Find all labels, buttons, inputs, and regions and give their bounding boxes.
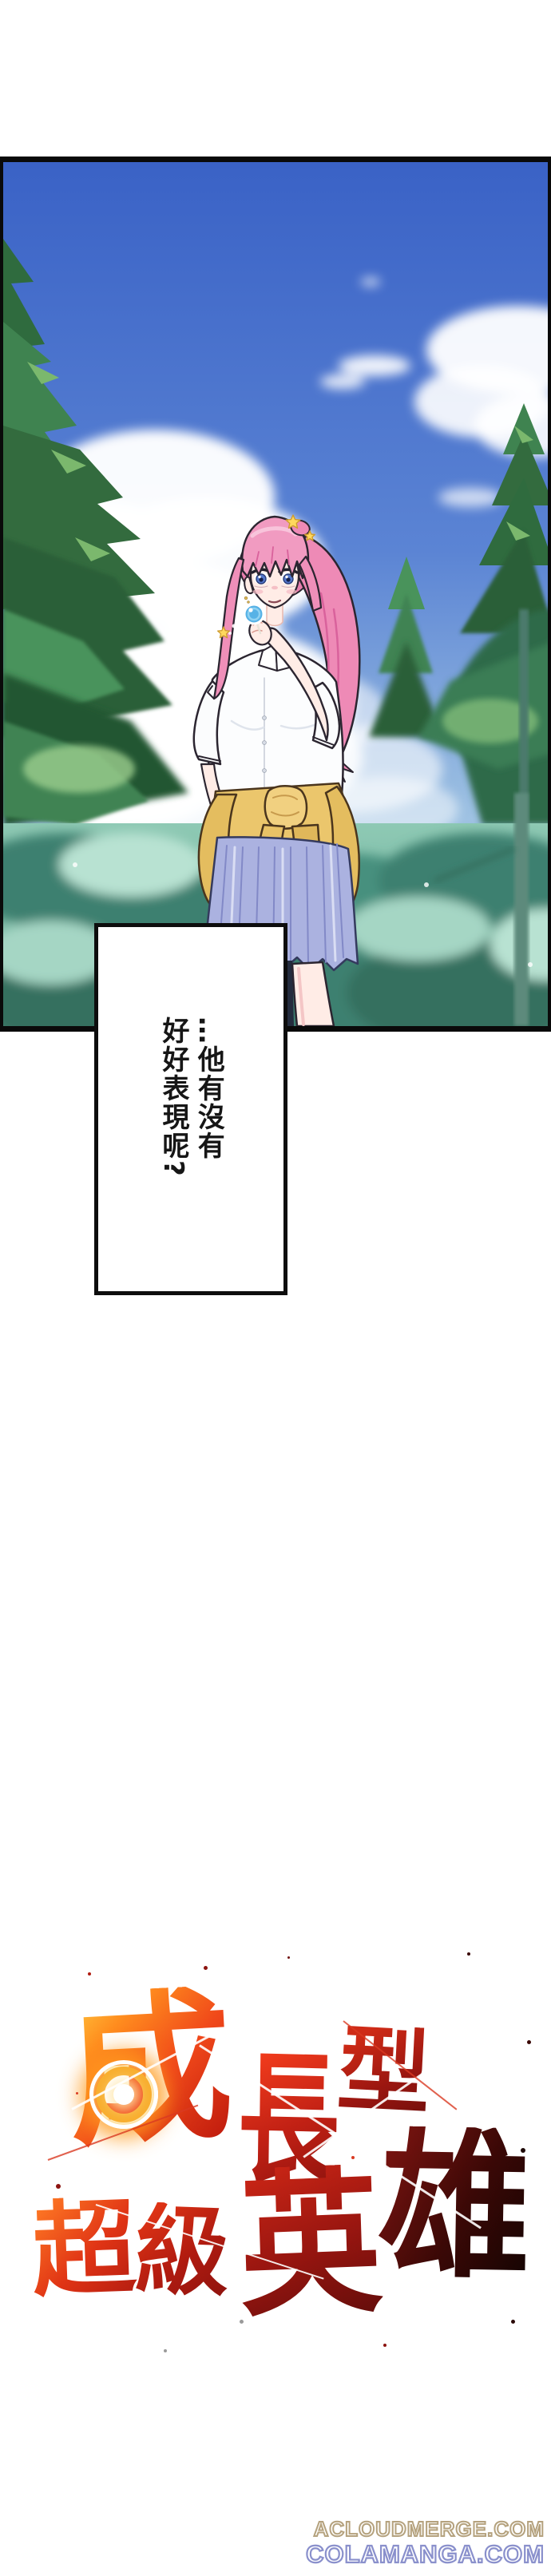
logo-char-ji: 級	[134, 2201, 231, 2303]
scratch-line	[96, 2204, 324, 2280]
scratch-line	[199, 2044, 482, 2229]
splatter-speck	[56, 2184, 61, 2189]
candy-lollipop	[244, 604, 264, 624]
logo-char-ying: 英	[237, 2163, 383, 2326]
logo-char-zhang: 長	[237, 2049, 341, 2194]
splatter-speck	[76, 2092, 78, 2094]
splatter-speck	[527, 2040, 531, 2044]
logo-char-chao: 超	[30, 2195, 137, 2302]
splatter-speck	[467, 1952, 470, 1956]
comic-page: …他有沒有 好好表現呢? 成 長 型 超 級 英 雄	[0, 0, 551, 2576]
scratch-line	[71, 1932, 403, 2110]
logo-char-xiong: 雄	[378, 2126, 533, 2289]
splatter-speck	[88, 1972, 91, 1976]
scratch-line	[303, 2023, 494, 2158]
logo-char-cheng: 成	[64, 1984, 236, 2156]
splatter-speck	[240, 2320, 244, 2324]
splatter-speck	[511, 2320, 515, 2324]
watermark-acloudmerge: ACLOUDMERGE.COM	[314, 2517, 545, 2542]
speech-column-1: …他有沒有	[191, 1017, 226, 1178]
panel-artwork	[3, 162, 548, 1026]
scratch-line-red	[48, 2105, 199, 2161]
watermark-colamanga: COLAMANGA.COM	[306, 2540, 545, 2569]
speech-text: …他有沒有 好好表現呢?	[156, 1017, 226, 1178]
splatter-speck	[204, 1966, 208, 1970]
scratch-line-red	[343, 2020, 457, 2110]
earring	[244, 596, 247, 599]
splatter-speck	[521, 2148, 525, 2153]
splatter-speck	[164, 2349, 167, 2352]
splatter-speck	[351, 2156, 355, 2159]
speech-column-2: 好好表現呢?	[156, 1017, 191, 1178]
speech-bubble: …他有沒有 好好表現呢?	[94, 923, 287, 1295]
logo-char-xing: 型	[335, 2023, 433, 2121]
splatter-speck	[287, 1956, 290, 1959]
logo-ring-ornament	[89, 2060, 158, 2129]
splatter-speck	[383, 2344, 386, 2347]
comic-panel	[0, 157, 551, 1032]
